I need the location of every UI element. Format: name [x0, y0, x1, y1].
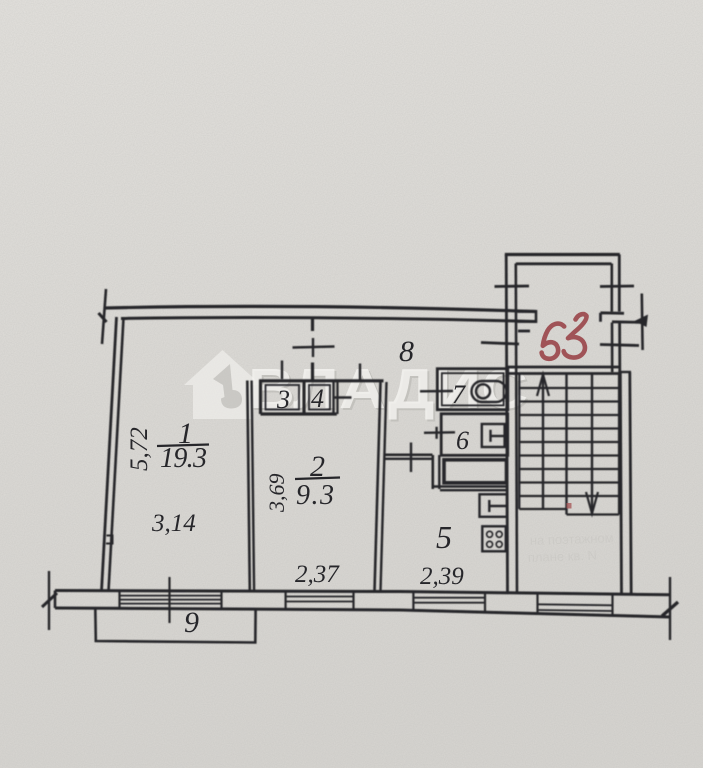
svg-text:4: 4	[311, 384, 324, 413]
svg-text:6: 6	[456, 426, 469, 455]
svg-text:9.3: 9.3	[296, 480, 334, 511]
svg-text:ВЛАДИС: ВЛАДИС	[248, 357, 528, 421]
svg-text:9: 9	[184, 606, 199, 639]
svg-text:на поэтажном: на поэтажном	[530, 530, 614, 548]
svg-text:3: 3	[276, 385, 290, 414]
svg-text:3,14: 3,14	[151, 510, 196, 537]
svg-text:3,69: 3,69	[264, 474, 289, 514]
svg-text:19.3: 19.3	[160, 443, 207, 474]
svg-text:8: 8	[399, 335, 414, 368]
svg-text:7: 7	[452, 380, 466, 409]
svg-text:5: 5	[436, 519, 452, 555]
svg-text:2,39: 2,39	[420, 563, 464, 590]
svg-text:2,37: 2,37	[295, 561, 340, 588]
svg-text:5,72: 5,72	[126, 427, 153, 471]
svg-text:плане кв. N: плане кв. N	[528, 548, 598, 565]
